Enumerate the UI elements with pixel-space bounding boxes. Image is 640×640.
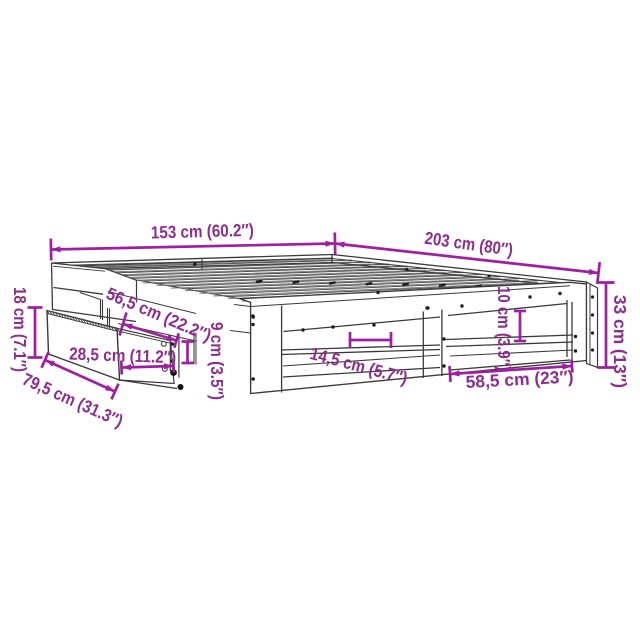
svg-text:18 cm (7.1″): 18 cm (7.1″) <box>10 287 30 372</box>
svg-text:10 cm (3.9″): 10 cm (3.9″) <box>494 286 514 371</box>
svg-text:153 cm (60.2″): 153 cm (60.2″) <box>151 220 254 243</box>
svg-text:33 cm (13″): 33 cm (13″) <box>610 295 630 388</box>
svg-text:28,5 cm (11.2″): 28,5 cm (11.2″) <box>69 344 177 368</box>
